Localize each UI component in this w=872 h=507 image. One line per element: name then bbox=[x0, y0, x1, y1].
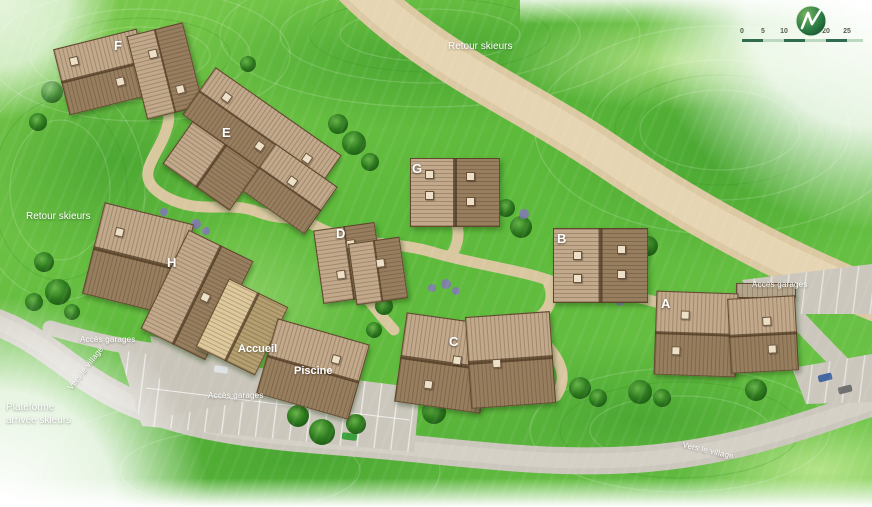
chimney bbox=[452, 355, 462, 365]
chimney bbox=[671, 346, 680, 355]
chimney bbox=[680, 310, 689, 319]
chimney bbox=[423, 380, 433, 390]
chimney bbox=[762, 317, 771, 326]
chimney bbox=[286, 175, 299, 188]
scale-tick-5: 5 bbox=[761, 28, 765, 35]
scale-tick-0: 0 bbox=[740, 28, 744, 35]
building-c-label: C bbox=[449, 334, 458, 349]
building-f-label: F bbox=[114, 38, 122, 53]
label-plateforme-arrivee-skieurs: Plateforme arrivée skieurs bbox=[6, 402, 71, 427]
label-accueil: Accueil bbox=[238, 343, 277, 355]
label-plateforme-line2: arrivée skieurs bbox=[6, 415, 71, 428]
label-acces-garages-left: Accès garages bbox=[80, 335, 136, 344]
building-b-label: B bbox=[557, 231, 566, 246]
chimney bbox=[200, 291, 212, 303]
building-b-roof bbox=[553, 228, 648, 303]
building-c-roof-east bbox=[465, 311, 556, 409]
label-acces-garages-center: Accès garages bbox=[208, 391, 264, 400]
building-g-roof bbox=[410, 158, 500, 227]
building-a-label: A bbox=[661, 296, 670, 311]
chimney bbox=[617, 245, 626, 254]
label-plateforme-line1: Plateforme bbox=[6, 402, 71, 415]
label-retour-skieurs-top: Retour skieurs bbox=[448, 41, 512, 52]
chimney bbox=[466, 172, 475, 181]
chimney bbox=[147, 49, 158, 60]
chimney bbox=[767, 344, 776, 353]
chimney bbox=[466, 197, 475, 206]
chimney bbox=[68, 55, 79, 66]
label-retour-skieurs-left: Retour skieurs bbox=[26, 211, 90, 222]
building-h-label: H bbox=[167, 255, 176, 270]
chimney bbox=[254, 140, 267, 153]
chimney bbox=[573, 251, 582, 260]
chimney bbox=[220, 92, 233, 105]
chimney bbox=[573, 274, 582, 283]
label-acces-garages-right: Accès garages bbox=[752, 280, 808, 289]
chimney bbox=[336, 269, 346, 279]
chimney bbox=[174, 84, 185, 95]
chimney bbox=[330, 354, 341, 365]
resort-site-plan: F E D G B A C H Retour skieurs Retour sk… bbox=[0, 0, 872, 507]
chimney bbox=[115, 76, 126, 87]
chimney bbox=[114, 227, 125, 238]
label-piscine: Piscine bbox=[294, 365, 333, 377]
building-d-roof-east bbox=[348, 237, 408, 306]
building-a-roof-east bbox=[727, 295, 799, 373]
north-compass-icon: N bbox=[794, 4, 828, 38]
building-e-label: E bbox=[222, 125, 231, 140]
scale-tick-25: 25 bbox=[843, 28, 851, 35]
scale-bar-segments bbox=[742, 39, 863, 42]
chimney bbox=[425, 170, 434, 179]
chimney bbox=[617, 270, 626, 279]
building-d-label: D bbox=[336, 226, 345, 241]
chimney bbox=[375, 258, 385, 268]
scale-tick-10: 10 bbox=[780, 28, 788, 35]
chimney bbox=[425, 191, 434, 200]
building-g-label: G bbox=[412, 161, 422, 176]
chimney bbox=[492, 359, 502, 369]
